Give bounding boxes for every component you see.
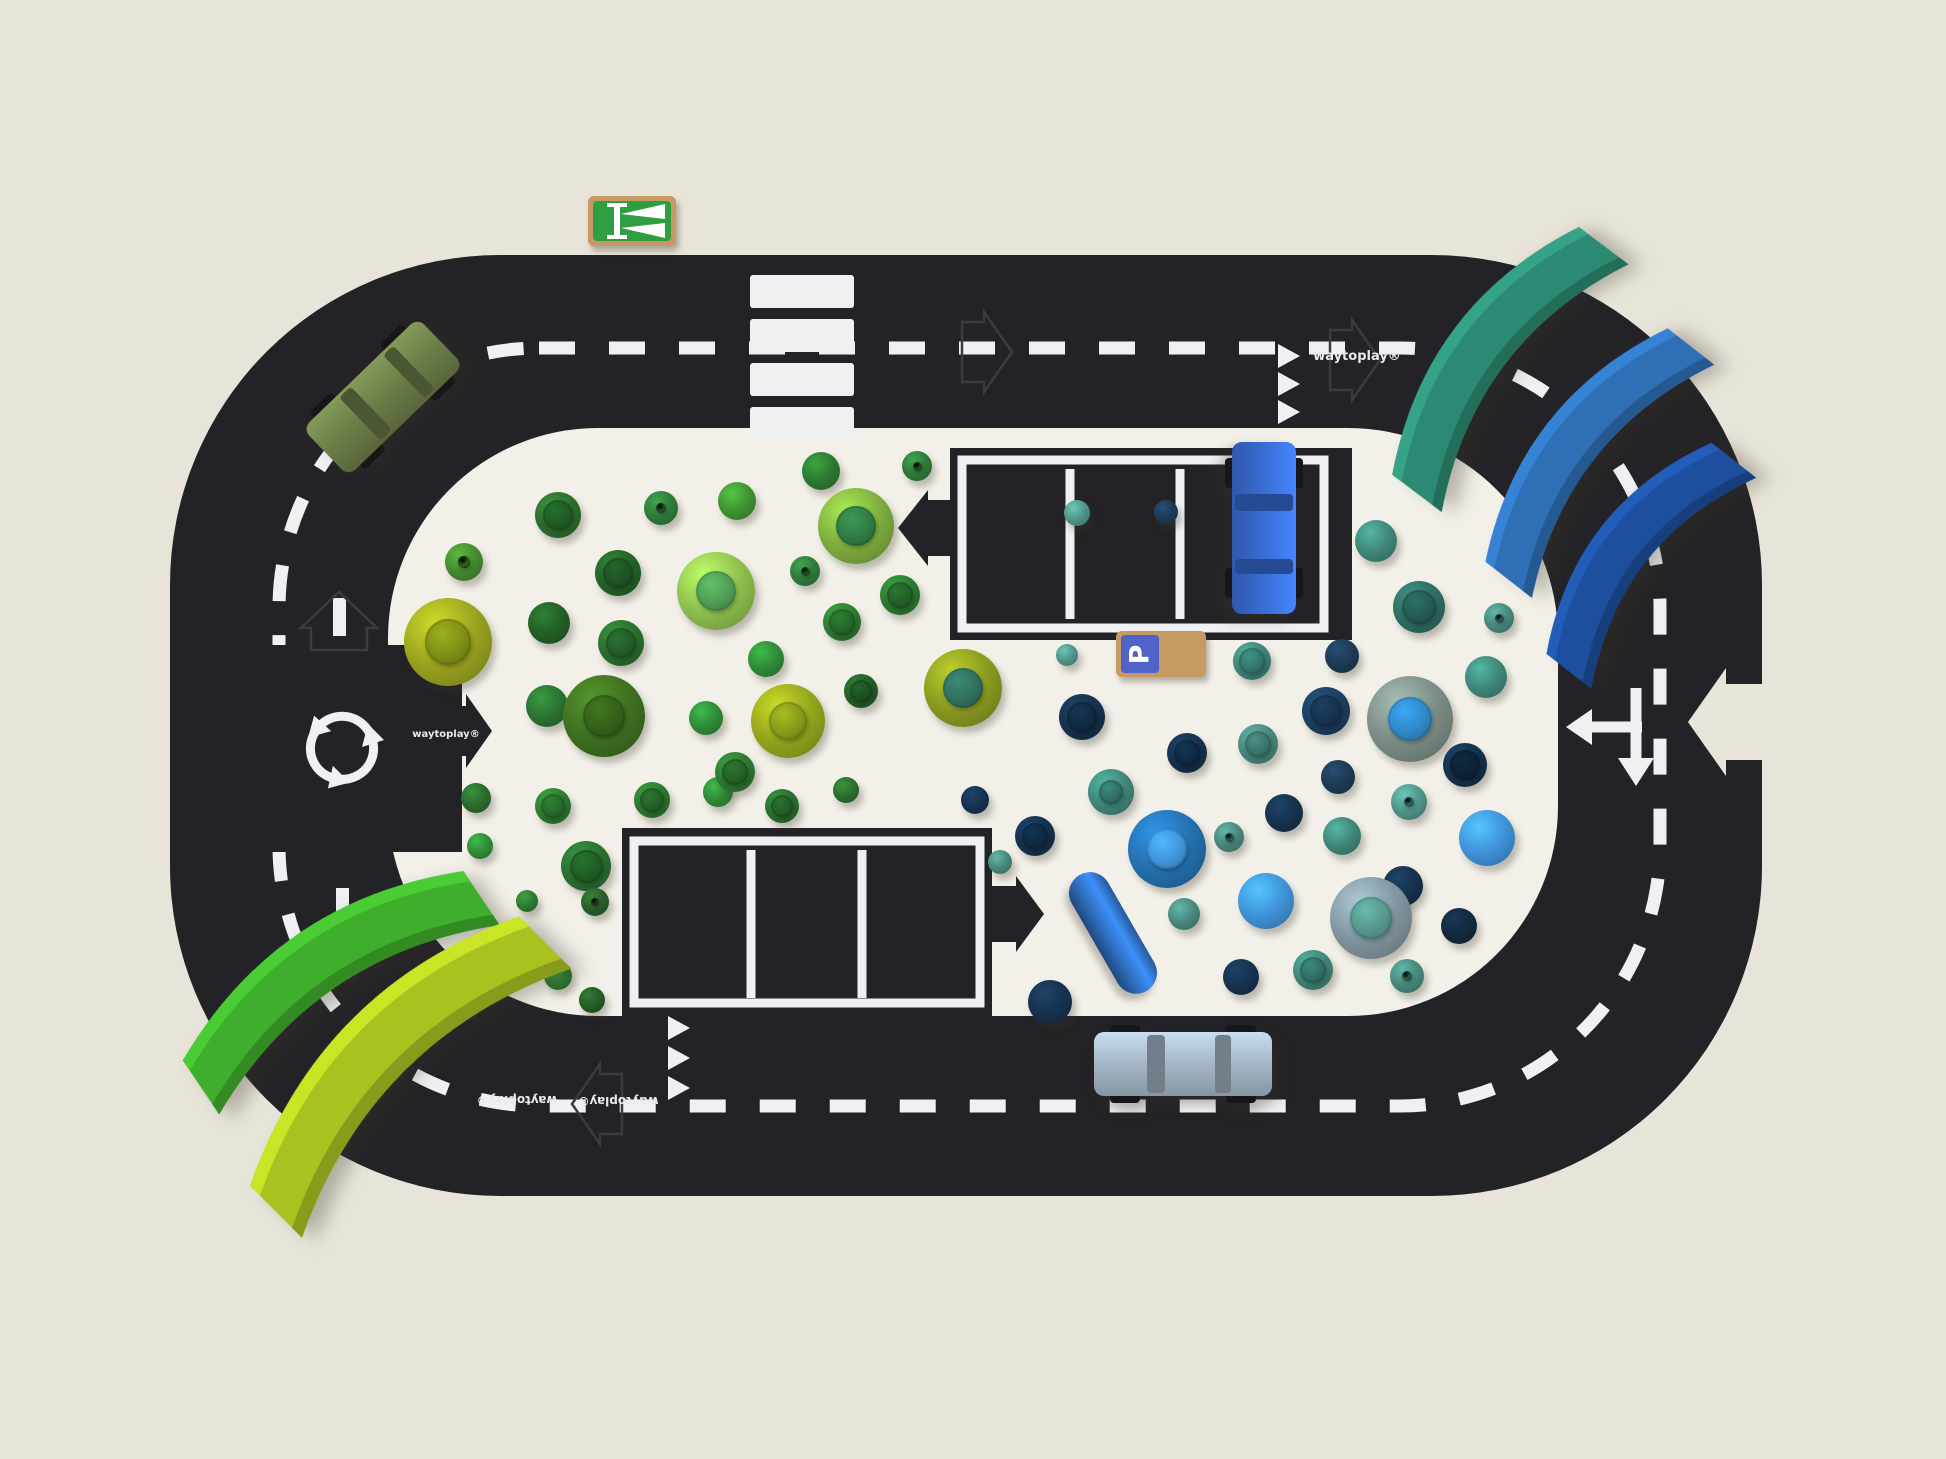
motorway-sign-block [588, 196, 676, 246]
motorway-icon [593, 201, 671, 241]
brand-mark-bottom-1: waytoplay® [477, 1093, 558, 1107]
brand-mark-top-right: waytoplay® [1313, 349, 1401, 364]
parking-lot-top [898, 448, 1352, 640]
brand-mark-bottom-2: waytoplay® [578, 1094, 659, 1108]
road-track: waytoplay® waytoplay® waytoplay® waytopl… [0, 0, 1946, 1459]
parking-sign-letter: P [1124, 644, 1155, 664]
parking-sign-block: P [1116, 631, 1206, 677]
parking-lot-bottom [622, 828, 1044, 1016]
brand-mark-roundabout: waytoplay® [412, 729, 479, 740]
toy-road-photo: waytoplay® waytoplay® waytoplay® waytopl… [0, 0, 1946, 1459]
